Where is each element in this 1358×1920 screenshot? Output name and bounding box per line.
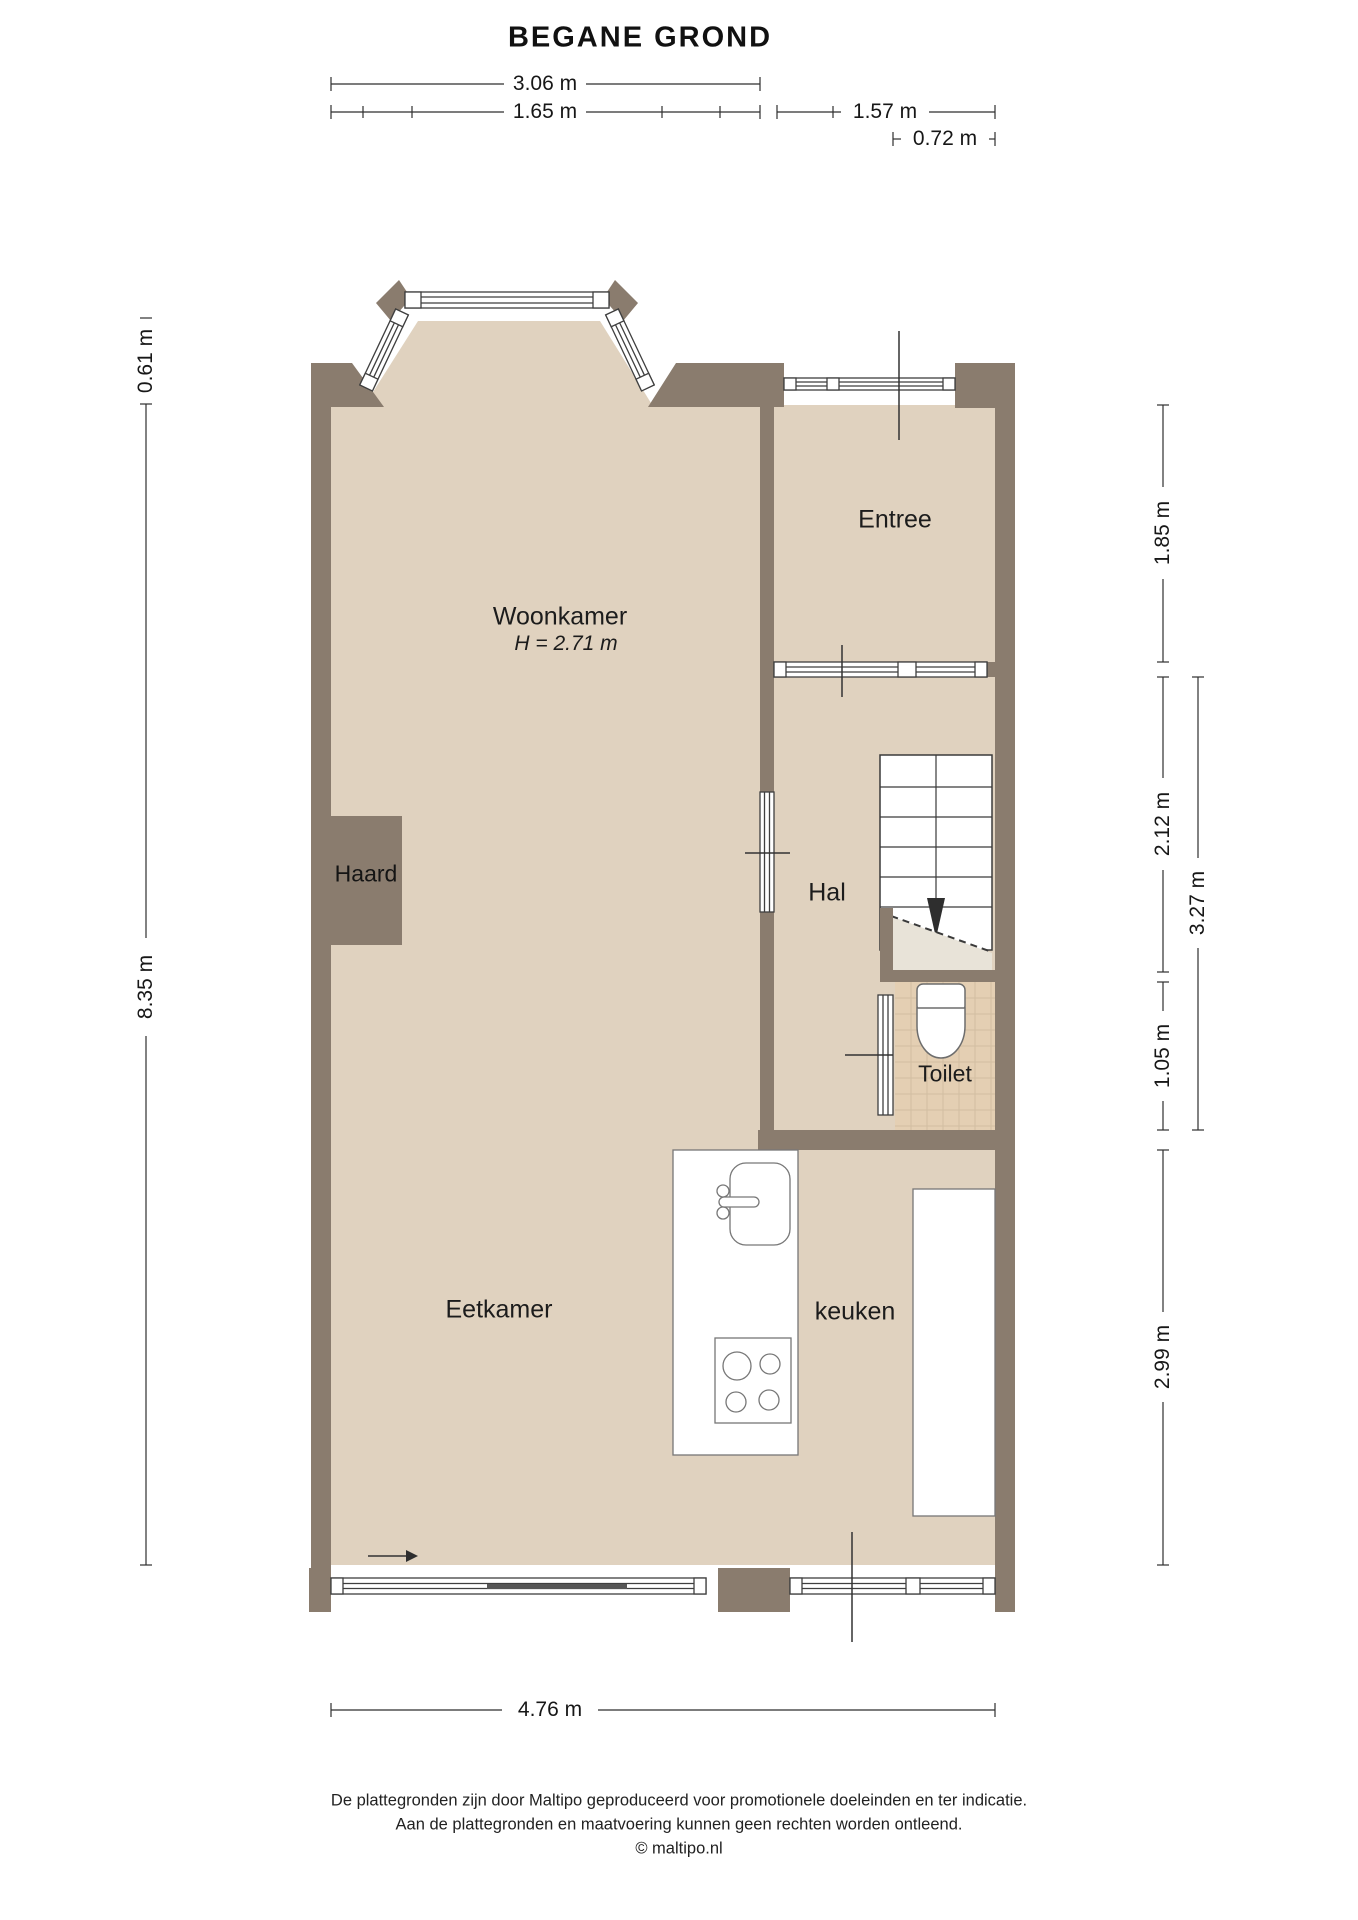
bottom-mid-pillar — [718, 1568, 790, 1612]
bay-top-window — [405, 292, 609, 308]
footer-copyright: © maltipo.nl — [635, 1840, 722, 1859]
entree-front-window — [784, 378, 955, 390]
stairs-toilet-wall — [880, 970, 995, 982]
bottom-left-pillar — [309, 1568, 331, 1612]
room-label-keuken: keuken — [815, 1298, 896, 1327]
entree-hal-wall-stub — [987, 662, 995, 677]
sliding-door — [331, 1578, 706, 1594]
footer-disclaimer-line1: De plattegronden zijn door Maltipo gepro… — [331, 1792, 1027, 1811]
stairs-side-wall — [880, 908, 893, 972]
right-outer-wall — [995, 363, 1015, 1612]
room-label-woonkamer: Woonkamer — [493, 603, 627, 632]
page-title: BEGANE GROND — [508, 22, 772, 55]
dim-bottom-476: 4.76 m — [518, 1698, 582, 1722]
woonkamer-hal-wall-lower — [760, 912, 774, 1130]
ceiling-height-label: H = 2.71 m — [514, 632, 617, 656]
dim-top-072: 0.72 m — [913, 127, 977, 151]
room-label-toilet: Toilet — [918, 1061, 972, 1088]
staircase — [880, 755, 992, 970]
bay-corner-bottom-right — [648, 363, 784, 407]
dim-right-327: 3.27 m — [1186, 871, 1210, 935]
room-label-haard: Haard — [335, 861, 398, 888]
room-label-eetkamer: Eetkamer — [446, 1296, 553, 1325]
woonkamer-hal-wall-upper — [760, 403, 774, 792]
room-label-entree: Entree — [858, 506, 932, 535]
floorplan-page: BEGANE GROND Woonkamer H = 2.71 m Entree… — [0, 0, 1358, 1920]
sliding-panel — [487, 1584, 627, 1589]
dim-top-157: 1.57 m — [853, 100, 917, 124]
dim-left-835: 8.35 m — [134, 955, 158, 1019]
dim-right-299: 2.99 m — [1151, 1325, 1175, 1389]
keuken-back-window — [790, 1578, 995, 1594]
floorplan-drawing — [0, 0, 1358, 1920]
dim-right-212: 2.12 m — [1151, 792, 1175, 856]
bay-floor — [366, 321, 651, 403]
toilet-room — [895, 982, 995, 1130]
footer-disclaimer-line2: Aan de plattegronden en maatvoering kunn… — [396, 1816, 963, 1835]
left-outer-wall — [311, 363, 331, 1568]
room-label-hal: Hal — [808, 879, 846, 908]
entree-hal-window — [774, 662, 987, 677]
toilet-fixture — [917, 984, 965, 1058]
dim-left-061: 0.61 m — [134, 329, 158, 393]
dim-top-165: 1.65 m — [513, 100, 577, 124]
dim-right-185: 1.85 m — [1151, 501, 1175, 565]
kitchen-counter — [913, 1189, 995, 1516]
cooktop-fixture — [715, 1338, 791, 1423]
dim-top-306: 3.06 m — [513, 72, 577, 96]
dim-right-105: 1.05 m — [1151, 1024, 1175, 1088]
hal-keuken-wall — [758, 1130, 1015, 1150]
